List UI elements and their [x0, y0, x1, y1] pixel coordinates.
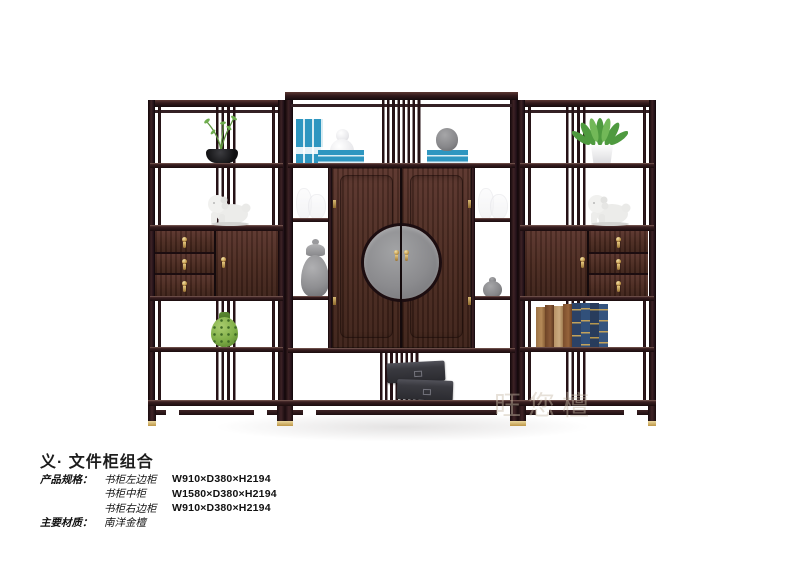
drawer-knob — [182, 281, 187, 286]
crystal-vase — [308, 194, 326, 220]
door-hinge — [333, 297, 336, 305]
book-spine — [536, 307, 545, 347]
right-unit-top-rail — [518, 100, 656, 107]
side-column-shelf — [474, 218, 510, 222]
drawer-divider — [589, 273, 648, 275]
black-box — [397, 379, 454, 401]
right-unit-left-post — [518, 100, 525, 406]
spec-name: 书柜左边柜 — [104, 472, 172, 487]
side-column-shelf — [474, 296, 510, 300]
right-unit-right-post — [649, 100, 656, 406]
spec-row: 书柜右边柜 W910×D380×H2194 — [40, 501, 277, 516]
side-column-shelf — [293, 218, 329, 222]
middle-unit-slats-top — [382, 100, 421, 163]
door-pull — [394, 250, 399, 255]
side-column-shelf — [293, 296, 329, 300]
brand-watermark: 旺您檀 — [494, 384, 596, 423]
left-unit-top-rail — [148, 100, 285, 107]
catalog-page: 旺您檀 义· 文件柜组合 产品规格： 书柜左边柜 W910×D380×H2194… — [0, 0, 800, 566]
drawer-knob — [616, 259, 621, 264]
material-label: 主要材质： — [40, 515, 104, 530]
book-spine — [581, 303, 590, 347]
green-porcelain-vase — [211, 317, 238, 347]
crystal-vase — [490, 194, 508, 220]
lion-figurine-left — [204, 192, 252, 226]
specs-label: 产品规格： — [40, 472, 104, 487]
middle-unit-right-post — [510, 92, 518, 406]
door-frame-post — [471, 168, 475, 348]
left-unit-right-post — [278, 100, 285, 406]
white-plant-pot — [590, 145, 614, 163]
gray-jar — [436, 128, 458, 151]
right-unit-shelf — [520, 163, 654, 168]
spec-dimensions: W910×D380×H2194 — [172, 473, 271, 485]
gray-temple-jar — [301, 255, 329, 297]
left-unit-leg — [148, 406, 156, 422]
door-knob — [221, 257, 226, 262]
left-unit-left-post — [148, 100, 155, 406]
book-spine — [563, 304, 572, 347]
drawer-knob — [616, 281, 621, 286]
door-gap — [400, 168, 402, 348]
material-row: 主要材质： 南洋金檀 — [40, 516, 277, 531]
spec-name: 书柜右边柜 — [104, 501, 172, 516]
brass-foot — [285, 421, 293, 426]
stretcher-cutout — [624, 410, 637, 415]
book-spine — [572, 303, 581, 347]
middle-unit-bottom-shelf — [285, 400, 518, 406]
left-unit-door — [216, 231, 278, 296]
book-spine — [545, 305, 554, 347]
material-value: 南洋金檀 — [104, 515, 172, 530]
door-hinge — [468, 297, 471, 305]
spec-dimensions: W910×D380×H2194 — [172, 502, 271, 514]
stretcher-cutout — [166, 410, 179, 415]
product-specs: 产品规格： 书柜左边柜 W910×D380×H2194 书柜中柜 W1580×D… — [40, 472, 277, 530]
door-hinge — [468, 200, 471, 208]
book-spine — [590, 303, 599, 347]
drawer-knob — [182, 237, 187, 242]
book-spine — [599, 304, 608, 347]
book-spine — [554, 306, 563, 347]
right-unit-door — [525, 231, 587, 296]
right-unit-leg — [648, 406, 656, 422]
door-hinge — [333, 200, 336, 208]
stacked-blue-books — [427, 150, 468, 163]
left-unit-shelf — [150, 163, 283, 168]
drawer-divider — [155, 273, 214, 275]
spec-name: 书柜中柜 — [104, 486, 172, 501]
middle-unit-leg — [285, 406, 293, 422]
middle-unit-top-rail — [285, 92, 518, 100]
drawer-divider — [589, 252, 648, 254]
door-knob — [580, 257, 585, 262]
left-unit-leg — [277, 406, 285, 422]
black-plant-pot — [206, 149, 238, 163]
right-unit-shelf — [520, 347, 654, 352]
product-title: 义· 文件柜组合 — [40, 448, 154, 472]
spec-row: 产品规格： 书柜左边柜 W910×D380×H2194 — [40, 472, 277, 487]
stretcher-cutout — [254, 410, 267, 415]
potted-plant-bushy — [572, 112, 628, 150]
middle-unit-left-post — [285, 92, 293, 406]
brass-foot — [277, 421, 285, 426]
spec-dimensions: W1580×D380×H2194 — [172, 488, 277, 500]
door-pull — [404, 250, 409, 255]
stretcher-cutout — [303, 410, 316, 415]
stacked-blue-books — [318, 150, 364, 163]
middle-unit-stretcher — [292, 410, 511, 415]
left-unit-bottom-shelf — [148, 400, 285, 406]
brass-foot — [148, 421, 156, 426]
drawer-divider — [155, 252, 214, 254]
left-unit-shelf — [150, 347, 283, 352]
drawer-knob — [182, 259, 187, 264]
potted-plant-sprigs — [198, 110, 244, 152]
brass-foot — [648, 421, 656, 426]
lion-figurine-right — [584, 192, 632, 226]
spec-row: 书柜中柜 W1580×D380×H2194 — [40, 487, 277, 502]
drawer-knob — [616, 237, 621, 242]
book-row — [536, 303, 608, 347]
